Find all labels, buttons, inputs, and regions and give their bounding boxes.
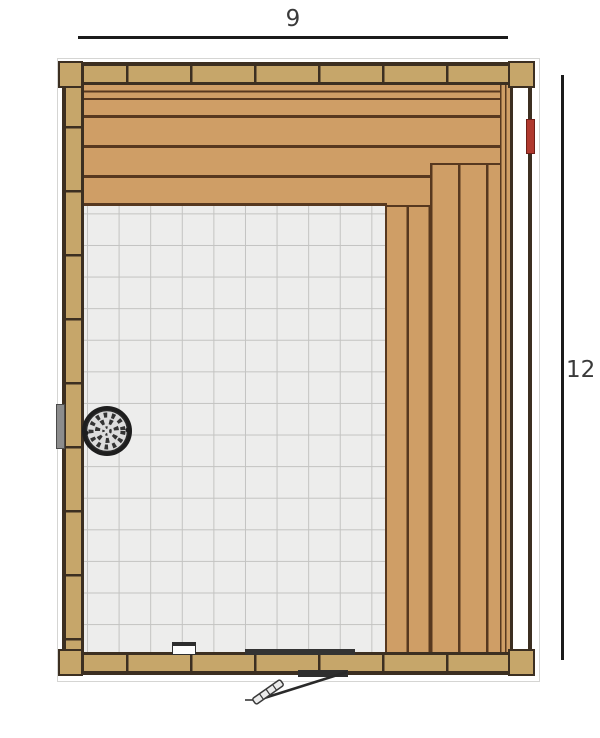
wall-left <box>62 62 84 675</box>
width-dimension-label: 9 <box>78 8 508 31</box>
wall-vent-fixture <box>56 404 65 449</box>
bench-right-upper-vertical-planks <box>430 163 500 652</box>
corner-post-bottom-right <box>508 649 535 676</box>
sauna-floor-plan: 9 12 <box>0 0 600 738</box>
bench-right-edge-strips <box>500 85 510 652</box>
corner-post-bottom-left <box>58 649 83 676</box>
door-handle-icon <box>252 679 284 704</box>
bench-front-edge-line <box>84 203 387 206</box>
bench-top-edge-strips <box>84 85 500 100</box>
floor-drain-box <box>172 642 196 655</box>
red-control-fixture <box>526 119 535 154</box>
door-frame-outer-band <box>298 670 348 677</box>
wall-bottom <box>62 652 532 675</box>
bench-right-lower-vertical-planks <box>385 205 430 652</box>
corner-post-top-left <box>58 61 83 88</box>
height-dimension-line <box>561 75 564 660</box>
width-dimension-line <box>78 36 508 39</box>
wall-top <box>62 62 532 85</box>
door-opening-header <box>245 649 355 655</box>
corner-post-top-right <box>508 61 535 88</box>
height-dimension-label: 12 <box>566 359 595 382</box>
